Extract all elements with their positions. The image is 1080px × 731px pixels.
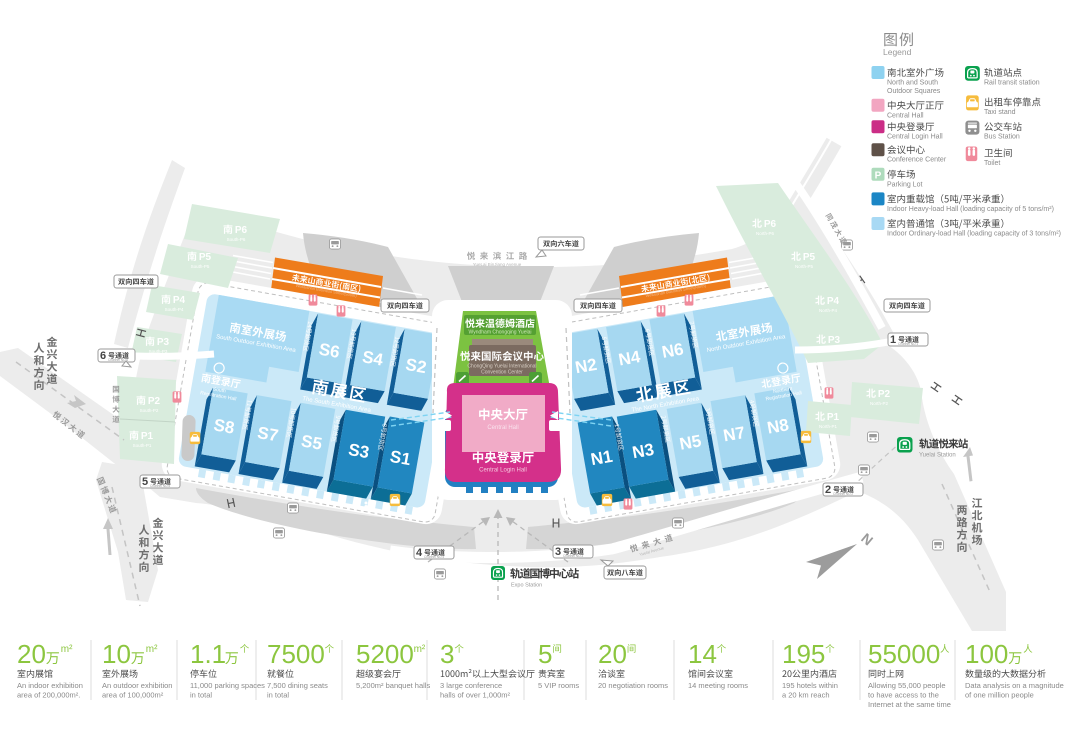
svg-text:14: 14 <box>688 639 717 669</box>
svg-text:Convention Center: Convention Center <box>481 370 523 376</box>
svg-text:100: 100 <box>965 639 1008 669</box>
svg-text:P3: P3 <box>157 337 170 348</box>
svg-text:N1: N1 <box>589 447 614 469</box>
svg-text:Channel NO.3: Channel NO.3 <box>563 554 583 558</box>
svg-text:5,200m² banquet halls: 5,200m² banquet halls <box>356 681 430 690</box>
svg-text:P1: P1 <box>141 431 154 442</box>
svg-text:195: 195 <box>782 639 825 669</box>
svg-text:P4: P4 <box>173 295 186 306</box>
svg-text:P6: P6 <box>235 225 248 236</box>
svg-text:20: 20 <box>17 639 46 669</box>
svg-text:Allowing 55,000 people: Allowing 55,000 people <box>868 681 946 690</box>
svg-text:South-P6: South-P6 <box>227 237 246 242</box>
svg-text:6: 6 <box>100 350 106 362</box>
svg-text:area of 100,000m²: area of 100,000m² <box>102 691 164 700</box>
svg-text:Internet at the same time: Internet at the same time <box>868 700 951 709</box>
svg-text:5: 5 <box>142 476 148 488</box>
svg-text:m²: m² <box>61 644 73 655</box>
svg-text:Rail transit station: Rail transit station <box>984 80 1040 87</box>
svg-text:Central Login Hall: Central Login Hall <box>479 468 527 474</box>
svg-text:7,500 dining seats: 7,500 dining seats <box>267 681 328 690</box>
svg-text:10: 10 <box>102 639 131 669</box>
svg-text:YueLai BinJiang Avenue: YueLai BinJiang Avenue <box>473 262 522 267</box>
svg-text:North-P1: North-P1 <box>819 424 838 429</box>
svg-text:N2: N2 <box>574 355 599 377</box>
svg-text:in total: in total <box>267 691 289 700</box>
svg-text:Bus Station: Bus Station <box>984 134 1020 141</box>
svg-text:11,000 parking spaces: 11,000 parking spaces <box>190 681 265 690</box>
svg-text:N4: N4 <box>617 347 642 370</box>
svg-text:P5: P5 <box>199 252 212 263</box>
svg-text:Channel NO.4: Channel NO.4 <box>424 555 444 559</box>
svg-text:N5: N5 <box>678 431 703 453</box>
svg-text:5: 5 <box>538 639 552 669</box>
svg-text:5 VIP rooms: 5 VIP rooms <box>538 681 579 690</box>
svg-text:S1: S1 <box>388 447 412 469</box>
svg-text:Channel NO.1: Channel NO.1 <box>898 342 918 346</box>
svg-text:P1: P1 <box>827 412 840 423</box>
svg-text:Indoor Heavy-load Hall (loadin: Indoor Heavy-load Hall (loading capacity… <box>887 206 1054 213</box>
svg-text:P3: P3 <box>828 335 841 346</box>
svg-text:P4: P4 <box>827 296 840 307</box>
svg-text:An outdoor exhibition: An outdoor exhibition <box>102 681 172 690</box>
svg-text:N3: N3 <box>631 440 656 462</box>
svg-text:S6: S6 <box>317 340 341 362</box>
svg-text:Outdoor Squares: Outdoor Squares <box>887 88 941 95</box>
svg-text:P2: P2 <box>878 389 891 400</box>
svg-text:in total: in total <box>190 691 212 700</box>
svg-text:halls of over 1,000m²: halls of over 1,000m² <box>440 691 511 700</box>
svg-text:Wyndham Chongqing Yuelai: Wyndham Chongqing Yuelai <box>469 330 532 336</box>
svg-text:Parking Lot: Parking Lot <box>887 181 922 188</box>
svg-text:S3: S3 <box>347 440 371 462</box>
svg-text:North and South: North and South <box>887 80 938 87</box>
svg-text:55000: 55000 <box>868 639 940 669</box>
svg-text:North-P4: North-P4 <box>819 308 838 313</box>
svg-text:An indoor exhibition: An indoor exhibition <box>17 681 83 690</box>
svg-text:4: 4 <box>416 547 423 559</box>
svg-text:N8: N8 <box>766 415 791 437</box>
svg-text:N7: N7 <box>722 423 747 445</box>
svg-text:Indoor Ordinary-load Hall (loa: Indoor Ordinary-load Hall (loading capac… <box>887 231 1061 238</box>
svg-text:S5: S5 <box>300 431 324 453</box>
svg-text:Channel NO.5: Channel NO.5 <box>150 484 170 488</box>
svg-text:Taxi stand: Taxi stand <box>984 109 1016 116</box>
svg-text:South-P2: South-P2 <box>140 408 159 413</box>
svg-text:Conference Center: Conference Center <box>887 157 947 164</box>
svg-text:14 meeting rooms: 14 meeting rooms <box>688 681 748 690</box>
svg-text:195 hotels within: 195 hotels within <box>782 681 838 690</box>
svg-text:2: 2 <box>825 484 831 496</box>
svg-text:5200: 5200 <box>356 639 414 669</box>
svg-text:7500: 7500 <box>267 639 325 669</box>
svg-text:to have access to the: to have access to the <box>868 691 939 700</box>
svg-text:S2: S2 <box>404 355 428 377</box>
svg-text:m²: m² <box>146 644 158 655</box>
svg-text:Legend: Legend <box>883 47 912 57</box>
svg-text:3 large conference: 3 large conference <box>440 681 502 690</box>
svg-text:Yuelai Station: Yuelai Station <box>919 453 956 459</box>
svg-text:S8: S8 <box>212 415 236 437</box>
svg-text:20 negotiation rooms: 20 negotiation rooms <box>598 681 668 690</box>
svg-text:Channel NO.2: Channel NO.2 <box>833 492 853 496</box>
svg-text:S4: S4 <box>361 347 385 369</box>
svg-text:Central Hall: Central Hall <box>887 112 924 119</box>
svg-text:South-P1: South-P1 <box>133 443 152 448</box>
svg-text:Data analysis on a magnitude: Data analysis on a magnitude <box>965 681 1064 690</box>
svg-text:1: 1 <box>890 334 896 346</box>
svg-text:m²: m² <box>414 644 426 655</box>
svg-text:South-P4: South-P4 <box>165 307 184 312</box>
svg-text:Central Hall: Central Hall <box>487 425 518 431</box>
svg-text:Expo Station: Expo Station <box>511 583 542 589</box>
svg-text:a 20 km reach: a 20 km reach <box>782 691 830 700</box>
svg-text:P5: P5 <box>803 252 816 263</box>
svg-text:North-P6: North-P6 <box>756 231 775 236</box>
svg-text:20: 20 <box>598 639 627 669</box>
svg-text:area of 200,000m².: area of 200,000m². <box>17 691 80 700</box>
svg-text:P: P <box>875 170 882 181</box>
svg-text:3: 3 <box>555 546 561 558</box>
svg-text:3: 3 <box>440 639 454 669</box>
svg-text:P6: P6 <box>764 219 777 230</box>
svg-text:North-P5: North-P5 <box>795 264 814 269</box>
svg-text:North-P2: North-P2 <box>870 401 889 406</box>
svg-text:of one million people: of one million people <box>965 691 1034 700</box>
svg-text:P2: P2 <box>148 396 161 407</box>
svg-text:Toilet: Toilet <box>984 160 1000 167</box>
svg-text:1.1: 1.1 <box>190 639 226 669</box>
svg-text:S7: S7 <box>256 423 280 445</box>
svg-text:South-P5: South-P5 <box>191 264 210 269</box>
svg-text:Central Login Hall: Central Login Hall <box>887 134 943 141</box>
svg-text:N6: N6 <box>660 340 685 362</box>
